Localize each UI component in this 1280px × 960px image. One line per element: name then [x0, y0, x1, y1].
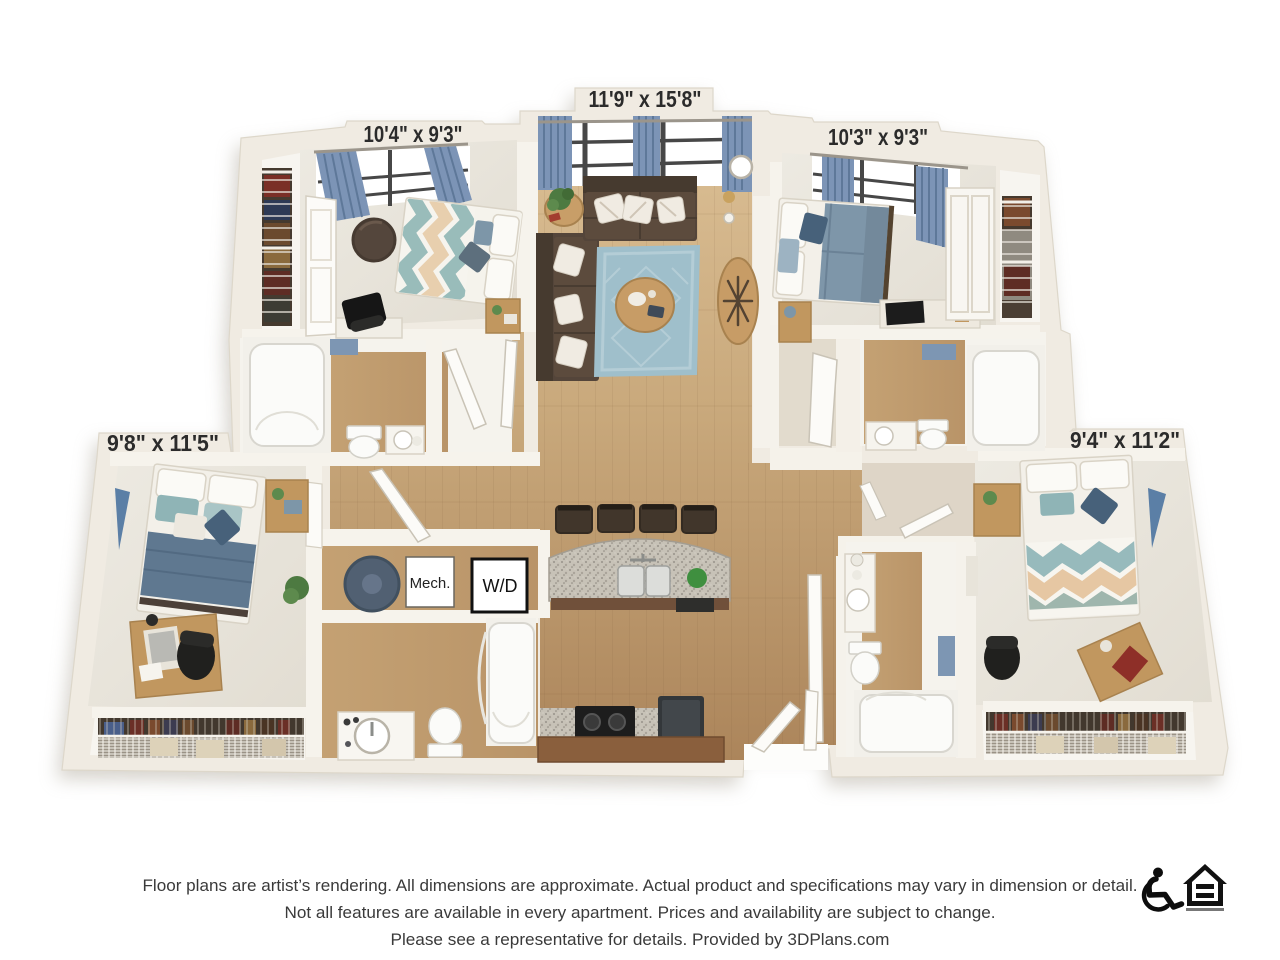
svg-text:W/D: W/D — [483, 576, 518, 596]
svg-text:9'4" x 11'2": 9'4" x 11'2" — [1070, 427, 1180, 453]
svg-text:11'9" x 15'8": 11'9" x 15'8" — [589, 86, 702, 112]
svg-text:9'8" x 11'5": 9'8" x 11'5" — [107, 430, 219, 456]
svg-text:10'3" x 9'3": 10'3" x 9'3" — [828, 124, 928, 150]
svg-text:Please see a representative fo: Please see a representative for details.… — [391, 930, 890, 949]
svg-text:10'4" x 9'3": 10'4" x 9'3" — [364, 121, 463, 147]
svg-text:Mech.: Mech. — [410, 575, 451, 592]
svg-text:Floor plans are artist’s rende: Floor plans are artist’s rendering. All … — [143, 876, 1138, 895]
svg-text:Not all features are available: Not all features are available in every … — [285, 903, 996, 922]
